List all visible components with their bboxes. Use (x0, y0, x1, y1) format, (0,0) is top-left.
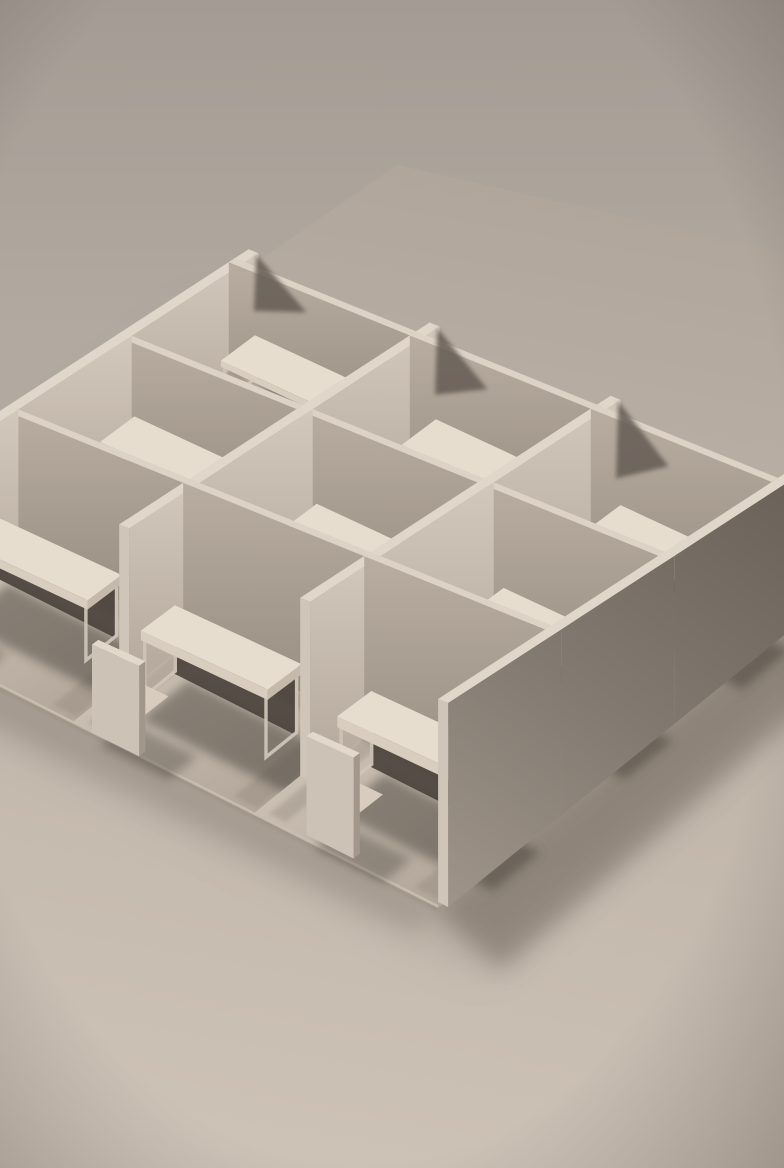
office-cubicle-model-render (0, 0, 784, 1168)
chair-back-side (354, 753, 360, 859)
chair-back-side (139, 661, 145, 756)
wall-end-cap (438, 699, 448, 907)
render-canvas (0, 0, 784, 1168)
